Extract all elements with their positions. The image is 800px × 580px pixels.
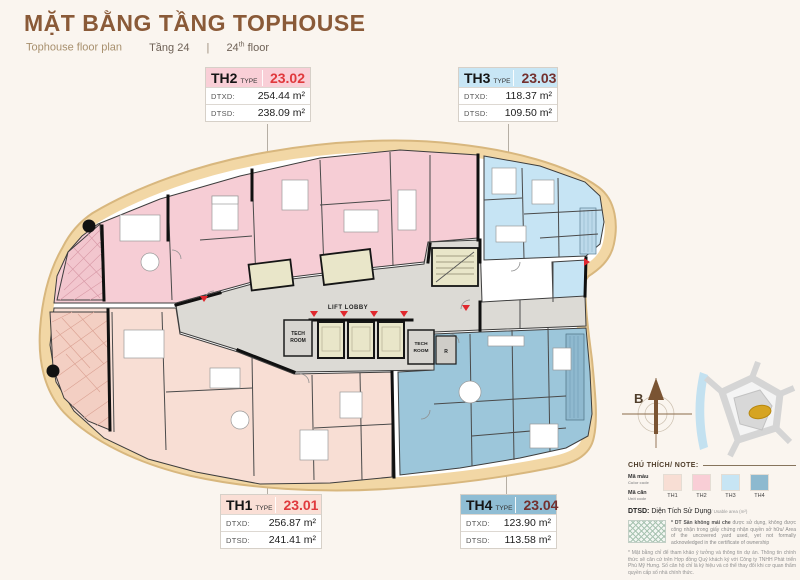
unit-dtsd-row: DTSD:113.58 m²	[461, 531, 556, 548]
dtsd-label: DTSD:	[226, 536, 250, 545]
subtitle-english: Tophouse floor plan	[26, 42, 122, 54]
dtxd-value: 118.37 m²	[506, 90, 553, 102]
subtitle-divider: |	[207, 42, 210, 54]
floor-plan-page: MẶT BẰNG TẦNG TOPHOUSE Tophouse floor pl…	[0, 0, 800, 580]
tech-room-left-label: TECH ROOM	[290, 331, 306, 344]
uncovered-yard-note: * DT Sân không mái che được sử dụng, khô…	[628, 520, 796, 546]
legend-swatch-item: TH1	[663, 474, 682, 501]
note1-bold: * DT Sân không mái che	[671, 520, 733, 526]
dtsd-en: / Usable area (m²)	[711, 509, 747, 514]
legend-swatches: TH1 TH2 TH3 TH4	[663, 474, 769, 501]
hatch-swatch	[628, 520, 666, 543]
swatch-th3	[721, 474, 740, 491]
dtxd-label: DTXD:	[466, 519, 490, 528]
swatch-label: TH3	[725, 493, 735, 499]
swatch-th2	[692, 474, 711, 491]
legend: CHÚ THÍCH/ NOTE: Mã màuColor code Mã căn…	[628, 462, 796, 580]
floor-label-english: 24th floor	[226, 42, 269, 54]
color-code-en: Color code	[628, 480, 658, 485]
stair-core	[432, 248, 478, 286]
unit-dtsd-row: DTSD:238.09 m²	[206, 104, 310, 121]
floor-word: floor	[248, 42, 269, 54]
dtxd-label: DTXD:	[464, 92, 488, 101]
unit-dtxd-row: DTXD:118.37 m²	[459, 87, 557, 104]
dtxd-value: 254.44 m²	[258, 90, 305, 102]
dtsd-value: 241.41 m²	[269, 534, 316, 546]
unit-info-card-th4: TH4 TYPE 23.04 DTXD:123.90 m² DTSD:113.5…	[460, 494, 557, 549]
unit-dtxd-row: DTXD:123.90 m²	[461, 514, 556, 531]
north-label: B	[634, 391, 643, 406]
unit-dtsd-row: DTSD:241.41 m²	[221, 531, 321, 548]
color-code-label: Mã màuColor code	[628, 474, 658, 485]
note1-text: * DT Sân không mái che được sử dụng, khô…	[671, 520, 796, 546]
unit-type-code-th2: 23.02	[262, 70, 305, 86]
swatch-label: TH1	[667, 493, 677, 499]
legend-swatch-item: TH3	[721, 474, 740, 501]
unit-info-card-th1: TH1 TYPE 23.01 DTXD:256.87 m² DTSD:241.4…	[220, 494, 322, 549]
river-shape	[696, 372, 709, 450]
compass-and-sitemap: B	[618, 358, 798, 464]
tech-label-line2: ROOM	[414, 348, 429, 354]
legend-swatch-item: TH4	[750, 474, 769, 501]
page-title: MẶT BẰNG TẦNG TOPHOUSE	[24, 10, 366, 37]
room-r-label: R	[444, 349, 448, 355]
unit-info-card-th2: TH2 TYPE 23.02 DTXD:254.44 m² DTSD:238.0…	[205, 67, 311, 122]
unit-type-label: TYPE	[255, 505, 272, 512]
legend-swatch-item: TH2	[692, 474, 711, 501]
lift-lobby-label: LIFT LOBBY	[328, 305, 368, 311]
dtsd-definition: DTSD: Diện Tích Sử Dụng/ Usable area (m²…	[628, 508, 796, 515]
floor-ordinal: th	[239, 41, 245, 48]
north-arrow-head	[648, 378, 664, 400]
swatch-th1	[663, 474, 682, 491]
disclaimer-vietnamese: * Mặt bằng chỉ để tham khảo ý tưởng và t…	[628, 550, 796, 576]
swatch-label: TH4	[754, 493, 764, 499]
dtsd-label: DTSD:	[464, 109, 488, 118]
dtsd-term: DTSD:	[628, 508, 649, 515]
tech-label-line1: TECH	[291, 331, 305, 337]
unit-code-label: Mã cănUnit code	[628, 490, 658, 501]
unit-dtxd-row: DTXD:256.87 m²	[221, 514, 321, 531]
legend-rule	[703, 465, 796, 466]
unit-type-label: TYPE	[493, 78, 510, 85]
compass: B	[622, 378, 692, 448]
dtsd-vi: Diện Tích Sử Dụng	[649, 508, 711, 515]
unit-type-label: TYPE	[495, 505, 512, 512]
dtxd-label: DTXD:	[211, 92, 235, 101]
region-th3-wing	[552, 260, 586, 302]
floor-plan-drawing: LIFT LOBBY TECH ROOM TECH ROOM R	[25, 120, 650, 502]
dtsd-value: 113.58 m²	[505, 534, 552, 546]
balcony-strip-th3	[580, 208, 596, 254]
unit-card-header-th2: TH2 TYPE 23.02	[206, 68, 310, 87]
unit-type-label: TYPE	[240, 78, 257, 85]
dtxd-value: 123.90 m²	[504, 517, 551, 529]
north-arrow-shaft	[654, 398, 658, 434]
dtxd-label: DTXD:	[226, 519, 250, 528]
swatch-th4	[750, 474, 769, 491]
legend-color-codes: Mã màuColor code Mã cănUnit code TH1 TH2…	[628, 474, 796, 501]
swatch-label: TH2	[696, 493, 706, 499]
page-subtitle: Tophouse floor plan Tầng 24 | 24th floor	[26, 41, 269, 54]
unit-id-th3: TH3	[464, 70, 490, 86]
site-minimap	[696, 362, 795, 456]
unit-card-header-th3: TH3 TYPE 23.03	[459, 68, 557, 87]
unit-info-card-th3: TH3 TYPE 23.03 DTXD:118.37 m² DTSD:109.5…	[458, 67, 558, 122]
dtsd-label: DTSD:	[466, 536, 490, 545]
unit-id-th2: TH2	[211, 70, 237, 86]
legend-code-labels: Mã màuColor code Mã cănUnit code	[628, 474, 658, 501]
unit-dtsd-row: DTSD:109.50 m²	[459, 104, 557, 121]
dtxd-value: 256.87 m²	[269, 517, 316, 529]
dtsd-value: 238.09 m²	[258, 107, 305, 119]
dtsd-label: DTSD:	[211, 109, 235, 118]
unit-dtxd-row: DTXD:254.44 m²	[206, 87, 310, 104]
balcony-strip-th4	[566, 334, 584, 420]
tech-label-line1: TECH	[414, 341, 428, 347]
unit-type-code-th3: 23.03	[513, 70, 556, 86]
dtsd-value: 109.50 m²	[505, 107, 552, 119]
unit-code-en: Unit code	[628, 496, 658, 501]
floor-label-vietnamese: Tầng 24	[149, 42, 189, 54]
legend-header: CHÚ THÍCH/ NOTE:	[628, 462, 796, 469]
tech-label-line2: ROOM	[290, 338, 306, 344]
legend-title: CHÚ THÍCH/ NOTE:	[628, 462, 699, 469]
floor-number: 24	[226, 42, 238, 54]
